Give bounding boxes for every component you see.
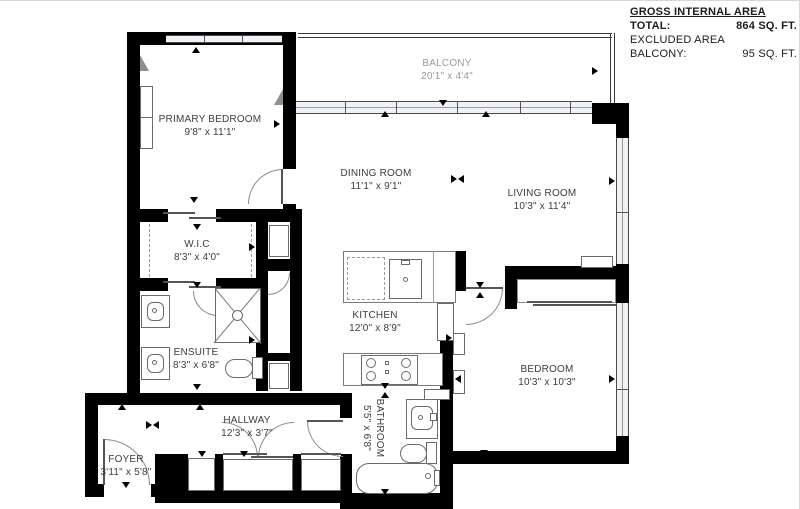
dimension-marker-icon <box>130 336 136 344</box>
wardrobe <box>140 117 153 149</box>
door-arc <box>268 273 290 295</box>
credenza <box>581 256 613 268</box>
legend-balcony-label: BALCONY: <box>630 47 687 61</box>
dimension-marker-icon <box>455 375 461 383</box>
door-arc <box>307 421 343 457</box>
closet <box>301 459 341 491</box>
primary-bedroom-dims: 9'8" x 11'1" <box>159 126 262 139</box>
dimension-marker-icon <box>592 67 598 75</box>
dimension-marker-icon <box>240 451 248 457</box>
sliding-door <box>301 453 341 455</box>
wall <box>505 266 517 309</box>
shelf <box>453 333 465 355</box>
door-leaf <box>466 287 503 289</box>
hallway-dims: 12'3" x 3'7" <box>221 427 273 440</box>
wic-dims: 8'3" x 4'0" <box>174 251 220 264</box>
counter-divider <box>433 251 434 303</box>
pocket-door <box>189 217 221 219</box>
wic-name: W.I.C <box>174 238 220 251</box>
stove-burner <box>401 358 411 368</box>
door-leaf <box>307 420 343 422</box>
balcony-railing <box>610 33 611 103</box>
legend-total-label: TOTAL: <box>630 19 671 33</box>
legend-balcony-row: BALCONY: 95 SQ. FT. <box>630 47 797 61</box>
bedroom-label: BEDROOM 10'3" x 10'3" <box>518 363 575 389</box>
window-mullion <box>570 101 571 114</box>
dimension-marker-icon <box>439 100 447 106</box>
dimension-marker-icon <box>458 175 464 183</box>
hallway-label: HALLWAY 12'3" x 3'7" <box>221 414 273 440</box>
pocket-door <box>163 212 195 214</box>
ensuite-dims: 8'3" x 6'8" <box>173 359 219 372</box>
wall <box>340 493 452 509</box>
window-mullion <box>242 35 243 43</box>
dimension-marker-icon <box>476 292 484 298</box>
balcony-dims: 20'1" x 4'4" <box>421 70 473 83</box>
dimension-marker-icon <box>609 177 615 185</box>
closet <box>517 279 616 303</box>
toilet-bowl <box>225 359 253 378</box>
legend-title: GROSS INTERNAL AREA <box>630 5 797 19</box>
bathroom-name: BATHROOM <box>373 399 386 458</box>
dimension-marker-icon <box>130 243 136 251</box>
legend-total-value: 864 SQ. FT. <box>736 19 797 33</box>
faucet-icon <box>430 413 437 421</box>
foyer-label: FOYER 3'11" x 5'8" <box>101 453 152 479</box>
wall <box>440 451 629 464</box>
dimension-marker-icon <box>381 489 389 495</box>
window-mullion <box>622 303 623 436</box>
wall <box>188 491 352 503</box>
legend-balcony-value: 95 SQ. FT. <box>742 47 797 61</box>
window-mullion <box>204 35 205 43</box>
wall <box>340 404 352 418</box>
foyer-name: FOYER <box>101 453 152 466</box>
dimension-marker-icon <box>381 111 389 117</box>
dimension-marker-icon <box>482 111 490 117</box>
closet <box>188 458 215 491</box>
wall <box>155 454 188 503</box>
door-opening <box>168 278 216 291</box>
legend-total-row: TOTAL: 864 SQ. FT. <box>630 19 797 33</box>
bathtub-drain <box>425 473 431 479</box>
faucet-icon <box>418 415 423 420</box>
dimension-marker-icon <box>192 47 200 53</box>
sliding-door <box>527 301 612 303</box>
bathroom-dims: 5'5" x 6'8" <box>360 399 373 458</box>
dimension-marker-icon <box>446 334 452 342</box>
floor-plan: GROSS INTERNAL AREA TOTAL: 864 SQ. FT. E… <box>0 0 800 509</box>
stove-knob <box>385 370 389 374</box>
dimension-marker-icon <box>476 282 484 288</box>
living-room-name: LIVING ROOM <box>508 187 577 200</box>
wall <box>256 259 302 271</box>
door-leaf <box>281 169 283 204</box>
wall <box>283 32 296 169</box>
dimension-marker-icon <box>286 63 292 71</box>
bedroom-name: BEDROOM <box>518 363 575 376</box>
closet <box>269 225 289 257</box>
door-opening <box>168 209 216 222</box>
sink-drain <box>403 277 408 282</box>
legend-excluded-row: EXCLUDED AREA <box>630 33 797 47</box>
window-mullion <box>345 101 346 114</box>
wall-chamfer <box>274 89 283 105</box>
closet <box>223 459 293 491</box>
balcony-railing <box>298 33 612 34</box>
closet <box>269 363 289 389</box>
dimension-marker-icon <box>118 404 126 410</box>
wall <box>616 264 629 303</box>
wall <box>616 103 629 138</box>
stove-burner <box>366 358 376 368</box>
window-mullion <box>296 107 592 108</box>
dimension-marker-icon <box>249 243 255 251</box>
primary-bedroom-label: PRIMARY BEDROOM 9'8" x 11'1" <box>159 113 262 139</box>
balcony-name: BALCONY <box>421 57 473 70</box>
wall <box>85 393 98 497</box>
door-arc <box>466 288 503 325</box>
living-room-label: LIVING ROOM 10'3" x 11'4" <box>508 187 577 213</box>
wic-label: W.I.C 8'3" x 4'0" <box>174 238 220 264</box>
primary-bedroom-name: PRIMARY BEDROOM <box>159 113 262 126</box>
ensuite-name: ENSUITE <box>173 346 219 359</box>
dimension-marker-icon <box>193 384 201 390</box>
door-arc <box>248 169 283 204</box>
faucet-icon <box>152 308 157 313</box>
window-mullion <box>622 138 623 264</box>
wardrobe <box>140 86 153 118</box>
dimension-marker-icon <box>480 450 488 456</box>
ensuite-label: ENSUITE 8'3" x 6'8" <box>173 346 219 372</box>
stove-burner <box>401 371 411 381</box>
dimension-marker-icon <box>198 451 206 457</box>
toilet-tank <box>252 357 263 379</box>
sliding-door <box>251 456 293 458</box>
window-mullion <box>520 101 521 114</box>
hallway-name: HALLWAY <box>221 414 273 427</box>
dimension-marker-icon <box>274 120 280 128</box>
window-mullion <box>396 101 397 114</box>
dimension-marker-icon <box>249 336 255 344</box>
stove-knob <box>385 361 389 365</box>
dimension-marker-icon <box>196 404 204 410</box>
dining-room-name: DINING ROOM <box>340 167 411 180</box>
toilet-bowl <box>400 444 427 463</box>
dimension-marker-icon <box>381 392 389 398</box>
sliding-door <box>533 304 616 306</box>
foyer-dims: 3'11" x 5'8" <box>101 466 152 479</box>
dimension-marker-icon <box>129 118 135 126</box>
dimension-marker-icon <box>451 175 457 183</box>
dining-room-dims: 11'1" x 9'1" <box>340 180 411 193</box>
bedroom-dims: 10'3" x 10'3" <box>518 376 575 389</box>
bathroom-label: BATHROOM 5'5" x 6'8" <box>360 399 386 458</box>
faucet-icon <box>152 360 157 365</box>
balcony-railing <box>298 37 612 38</box>
dimension-marker-icon <box>609 375 615 383</box>
kitchen-name: KITCHEN <box>349 309 401 322</box>
kitchen-label: KITCHEN 12'0" x 8'9" <box>349 309 401 335</box>
area-legend: GROSS INTERNAL AREA TOTAL: 864 SQ. FT. E… <box>630 5 797 61</box>
window-mullion <box>616 389 629 390</box>
balcony-railing <box>614 33 615 103</box>
dimension-marker-icon <box>193 224 201 230</box>
window <box>166 35 282 43</box>
dimension-marker-icon <box>92 421 98 429</box>
wall <box>616 436 629 464</box>
dimension-marker-icon <box>122 482 130 488</box>
kitchen-dims: 12'0" x 8'9" <box>349 322 401 335</box>
faucet-icon <box>401 260 410 265</box>
wall <box>290 222 302 391</box>
bathtub-faucet <box>434 470 440 486</box>
window-mullion <box>457 101 458 114</box>
balcony-label: BALCONY 20'1" x 4'4" <box>421 57 473 83</box>
dimension-marker-icon <box>146 421 152 429</box>
dimension-marker-icon <box>190 197 198 203</box>
shower-drain <box>232 310 243 321</box>
living-room-dims: 10'3" x 11'4" <box>508 200 577 213</box>
closet-rod <box>149 224 150 277</box>
dishwasher <box>347 257 385 300</box>
window-mullion <box>616 212 629 213</box>
stove-burner <box>366 371 376 381</box>
pocket-door <box>163 281 195 283</box>
wall-chamfer <box>140 55 149 71</box>
dimension-marker-icon <box>153 421 159 429</box>
dimension-marker-icon <box>193 282 201 288</box>
dimension-marker-icon <box>381 383 389 389</box>
dining-room-label: DINING ROOM 11'1" x 9'1" <box>340 167 411 193</box>
legend-excluded-label: EXCLUDED AREA <box>630 33 725 47</box>
toilet-tank <box>426 442 437 464</box>
